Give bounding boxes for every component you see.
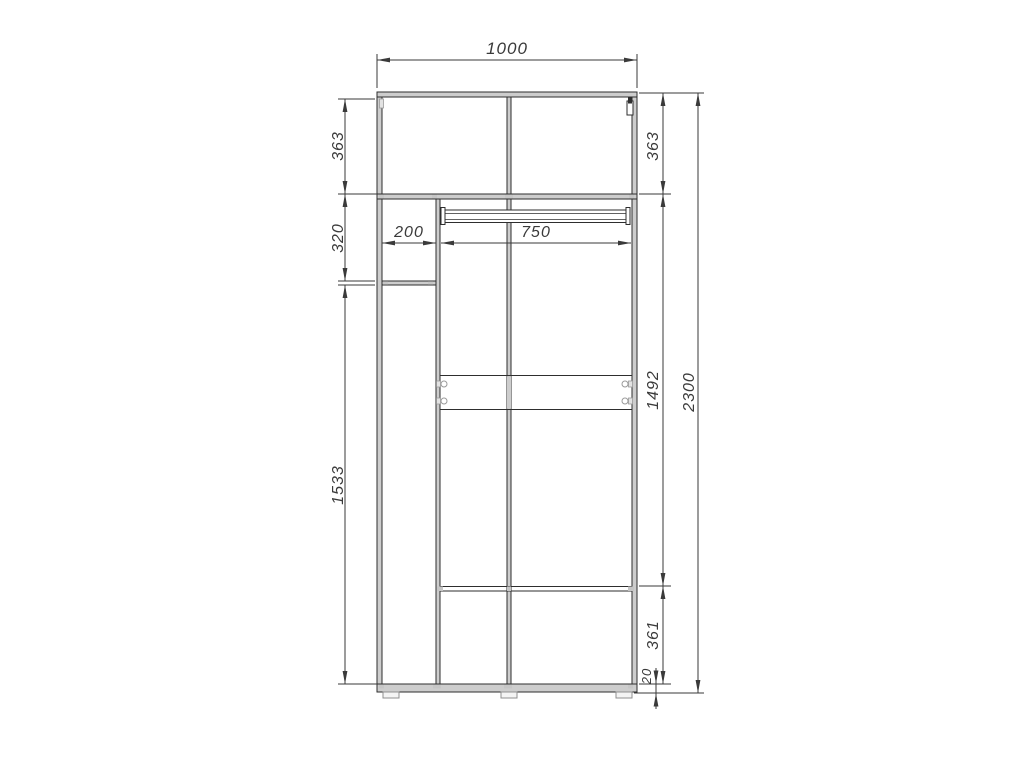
- upper-center-divider: [507, 97, 511, 194]
- hanging-rod: [441, 208, 630, 225]
- dim-label-left-lower-height: 1533: [330, 465, 347, 505]
- rod-bracket-right: [626, 208, 630, 225]
- foot-left: [383, 692, 399, 698]
- cabinet-structure: [377, 92, 637, 698]
- dim-label-left-shelf-gap: 320: [330, 223, 347, 253]
- dim-label-main-inner-height: 1492: [645, 370, 662, 410]
- dimension-labels: 1000 200 750 363 320 1533 363 1492 361 2…: [330, 39, 698, 685]
- dim-label-overall-height: 2300: [681, 372, 698, 413]
- foot-center: [501, 692, 517, 698]
- lower-center-divider: [507, 199, 511, 684]
- top-panel: [377, 92, 637, 97]
- vertical-partition: [436, 199, 440, 684]
- foot-right: [616, 692, 632, 698]
- dim-label-overall-width: 1000: [486, 39, 528, 58]
- feet: [383, 692, 632, 698]
- dim-label-bottom-section-height: 361: [645, 620, 662, 650]
- lower-shelf: [437, 587, 634, 592]
- left-column-shelf: [382, 281, 436, 285]
- dim-label-main-section-width: 750: [521, 224, 551, 241]
- wardrobe-technical-drawing: 1000 200 750 363 320 1533 363 1492 361 2…: [0, 0, 1024, 768]
- right-side-panel: [632, 97, 637, 684]
- dim-label-top-left-height: 363: [330, 131, 347, 161]
- dim-label-base-thickness: 20: [639, 668, 654, 685]
- dim-label-left-column-width: 200: [393, 224, 424, 241]
- rod-bracket-left: [441, 208, 445, 225]
- left-side-panel: [377, 97, 382, 684]
- middle-shelf-band: [437, 376, 633, 410]
- top-left-fitting: [380, 99, 384, 108]
- drawing-canvas: 1000 200 750 363 320 1533 363 1492 361 2…: [0, 0, 1024, 768]
- dim-label-top-right-height: 363: [645, 131, 662, 161]
